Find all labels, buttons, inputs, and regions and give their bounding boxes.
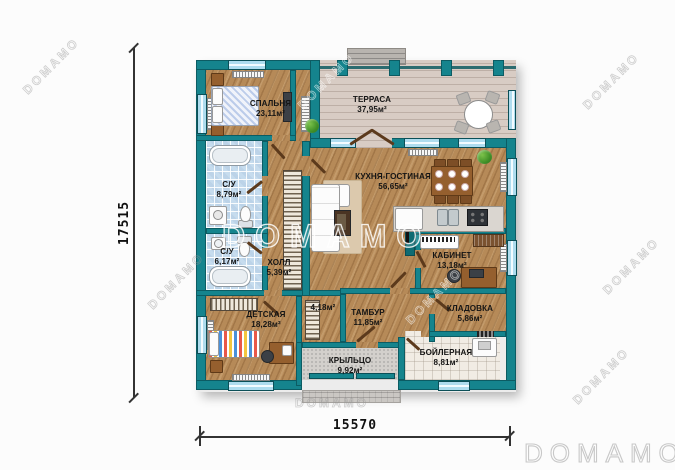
room-label-boiler-room: БОЙЛЕРНАЯ 8,81м² <box>413 347 480 367</box>
room-area: 37,95м² <box>340 104 405 114</box>
bookshelf <box>473 234 504 247</box>
window <box>228 60 266 70</box>
kitchen-sink <box>448 209 459 226</box>
radiator <box>408 149 438 156</box>
room-name: БОЙЛЕРНАЯ <box>413 347 480 357</box>
terrace-post <box>441 60 452 76</box>
radiator <box>232 374 270 381</box>
nightstand <box>211 125 224 136</box>
kitchen-sink <box>437 209 448 226</box>
bathtub-basin <box>212 269 248 284</box>
room-area: 23,11м² <box>244 108 296 118</box>
room-area: 56,65м² <box>352 181 434 191</box>
room-name: С/У <box>207 179 251 189</box>
room-label-kids-room: ДЕТСКАЯ 18,28м² <box>238 309 295 329</box>
room-name: СПАЛЬНЯ <box>244 98 296 108</box>
terrace-glazing <box>508 90 516 130</box>
plant <box>477 150 492 164</box>
doorway-bedroom <box>272 135 290 141</box>
watermark-small: DOMAMO <box>570 345 632 407</box>
plate <box>461 183 469 191</box>
floor-plan-page: { "branding": { "logo": "DOMAMO", "water… <box>0 0 675 470</box>
room-label-bedroom: СПАЛЬНЯ 23,11м² <box>244 98 296 118</box>
desk-chair <box>261 350 274 363</box>
radiator <box>500 244 507 272</box>
plate <box>435 183 443 191</box>
room-area: 9,92м² <box>322 365 379 375</box>
room-label-bathroom-1: С/У 8,79м² <box>207 179 251 199</box>
room-area: 11,85м² <box>340 317 397 327</box>
plate <box>435 170 443 178</box>
window <box>507 158 517 196</box>
room-name: КРЫЛЬЦО <box>322 355 379 365</box>
doorway-hall-kitchen <box>302 156 310 176</box>
window <box>438 381 470 391</box>
dimension-line-horizontal <box>200 436 510 438</box>
room-label-terrace: ТЕРРАСА 37,95м² <box>340 94 405 114</box>
dimension-line-vertical <box>133 48 135 398</box>
wall-boiler-left <box>398 337 405 380</box>
room-name: ТЕРРАСА <box>340 94 405 104</box>
window <box>197 94 207 134</box>
room-area: 8,81м² <box>413 357 480 367</box>
room-area: 5,39м² <box>255 267 303 277</box>
room-label-porch: КРЫЛЬЦО 9,92м² <box>322 355 379 375</box>
room-area: 8,79м² <box>207 189 251 199</box>
wall-porch-top <box>302 342 404 348</box>
room-name: КУХНЯ-ГОСТИНАЯ <box>352 171 434 181</box>
dimension-height-label: 17515 <box>117 193 131 253</box>
window <box>404 138 440 148</box>
plate <box>448 170 456 178</box>
room-name: ХОЛЛ <box>255 257 303 267</box>
pillow <box>212 106 223 123</box>
radiator <box>500 162 507 192</box>
plate <box>448 183 456 191</box>
room-name: ДЕТСКАЯ <box>238 309 295 319</box>
dimension-width-label: 15570 <box>315 418 395 433</box>
room-area: 5,86м² <box>437 313 504 323</box>
window <box>228 381 274 391</box>
pillow <box>212 88 223 105</box>
pillow <box>209 332 219 356</box>
watermark-small: DOMAMO <box>20 35 82 97</box>
doorway-bath-1 <box>262 176 268 196</box>
room-label-wardrobe-room: 4,18м² <box>304 302 342 312</box>
watermark-small: DOMAMO <box>600 235 662 297</box>
room-area: 18,28м² <box>238 319 295 329</box>
radiator <box>232 71 264 78</box>
nightstand <box>211 73 224 86</box>
papers <box>282 345 292 356</box>
nightstand <box>210 360 223 373</box>
room-area: 4,18м² <box>304 302 342 312</box>
room-label-kitchen-living: КУХНЯ-ГОСТИНАЯ 56,65м² <box>352 171 434 191</box>
room-label-storage: КЛАДОВКА 5,86м² <box>437 303 504 323</box>
doorway-tambour-kitchen <box>390 288 410 294</box>
wall-porch-left <box>296 342 302 386</box>
doorway-tambour-porch <box>356 342 378 348</box>
stove <box>467 209 488 226</box>
doorway-kids <box>264 290 282 296</box>
boiler-hood <box>478 341 491 350</box>
room-area: 6,17м² <box>205 256 249 266</box>
doorway-boiler <box>405 331 421 337</box>
wall-boiler-top <box>429 331 506 337</box>
plate <box>461 170 469 178</box>
room-name: ТАМБУР <box>340 307 397 317</box>
room-name: КЛАДОВКА <box>437 303 504 313</box>
domamo-logo: DOMAMO <box>524 438 675 469</box>
window <box>458 138 486 148</box>
plant <box>305 119 319 133</box>
watermark-center: DOMAMO <box>222 218 431 255</box>
window <box>197 316 207 354</box>
bathtub-basin <box>212 148 248 163</box>
boiler-grille <box>477 331 494 337</box>
room-label-hall: ХОЛЛ 5,39м² <box>255 257 303 277</box>
watermark-small: DOMAMO <box>295 396 369 410</box>
terrace-post <box>493 60 504 76</box>
terrace-post <box>389 60 400 76</box>
watermark-small: DOMAMO <box>580 50 642 112</box>
window <box>507 240 517 276</box>
room-label-tambour: ТАМБУР 11,85м² <box>340 307 397 327</box>
wall-lower-band <box>340 288 506 294</box>
